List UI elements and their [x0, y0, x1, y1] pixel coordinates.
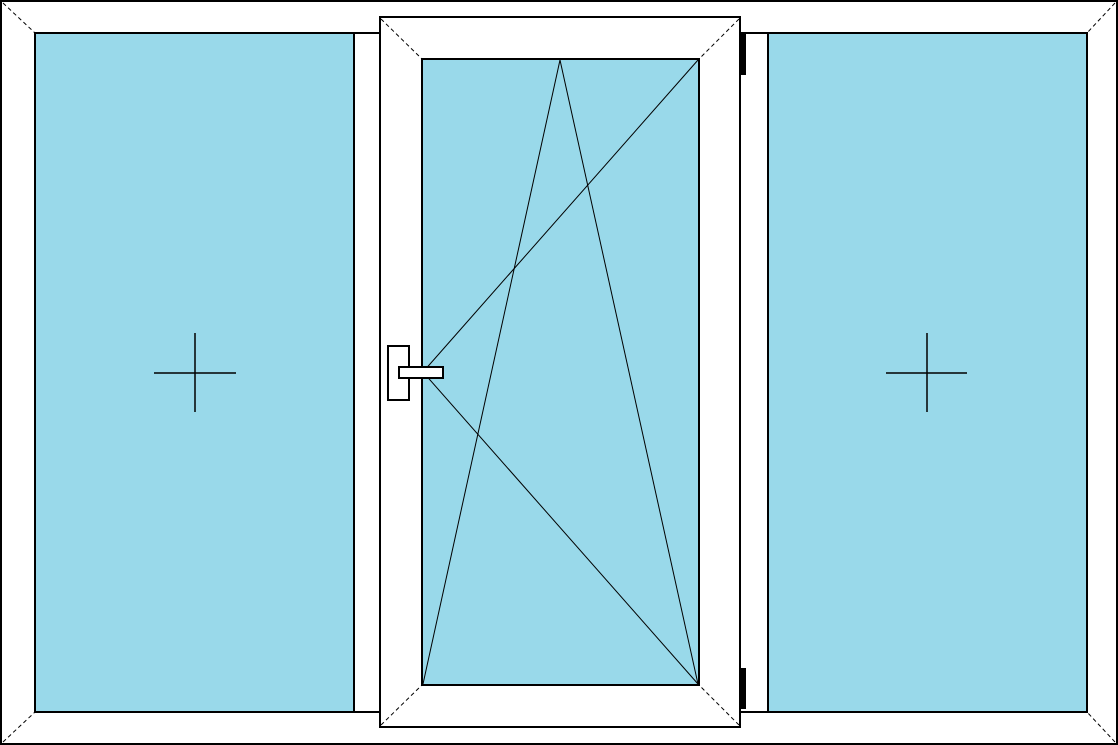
window-drawing-canvas [0, 0, 1118, 745]
window-handle-grip[interactable] [399, 367, 443, 378]
hinge-icon [741, 33, 746, 75]
hinge-icon [741, 668, 746, 709]
sash-glass-pane[interactable] [422, 59, 699, 685]
right-fixed-panel [768, 33, 1087, 712]
left-fixed-panel [35, 33, 354, 712]
center-tilt-turn-sash [380, 17, 746, 727]
window-drawing-stage [0, 0, 1118, 745]
